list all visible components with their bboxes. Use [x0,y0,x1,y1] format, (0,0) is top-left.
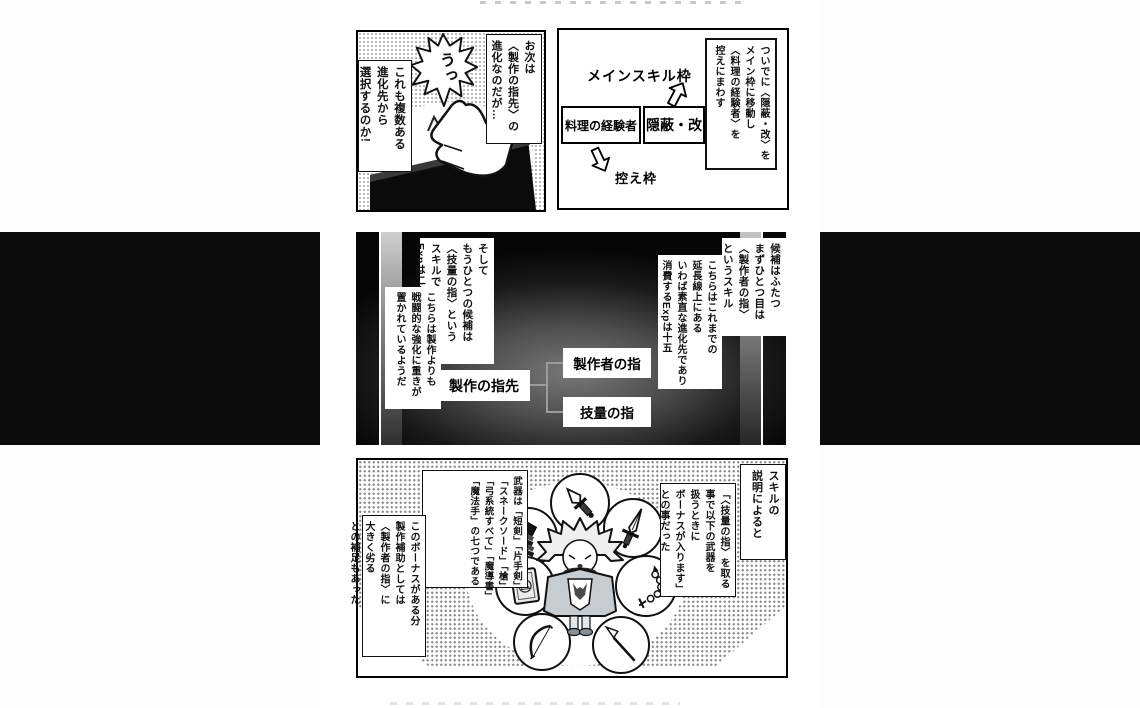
node-skill-finger: 技量の指 [563,397,651,427]
shoe [568,629,581,636]
narration-column: お次は [521,40,538,138]
narration-column: 候補はふたつ [766,243,782,331]
inpei-skill-box: 隠蔽・改 [643,106,705,144]
manga-page: うっ お次は 〈製作の指先〉の 進化なのだが… これも複数ある 進化先から 選択… [0,0,1140,708]
narration-column: 〈製作者の指〉に [376,521,391,651]
note-column: メイン枠に移動し [741,45,756,163]
narration-skill-description: スキルの 説明によると [740,464,786,560]
narration-column: 進化先から [373,66,390,166]
narration-column: 〈技量の指〉という [443,243,459,359]
note-column: ついでに〈隠蔽・改〉を [756,45,771,163]
shout-balloon: うっ [408,32,478,110]
narration-column: 進化なのだが… [488,40,505,138]
tree-line [548,411,563,413]
panel-top-left: うっ お次は 〈製作の指先〉の 進化なのだが… これも複数ある 進化先から 選択… [356,30,546,212]
narration-column: 説明によると [748,470,765,554]
spread-bleed-left [0,232,320,445]
narration-column: 「魔法手」の七つである [466,476,480,582]
panel-bottom: スキルの 説明によると 「〈技量の指〉を取る 事で以下の武器を 扱うときに ボー… [356,458,788,678]
note-box: ついでに〈隠蔽・改〉を メイン枠に移動し 〈料理の経験者〉を 控えにまわす [705,38,777,170]
narration-column: 〈製作の指先〉の [504,40,521,138]
node-crafting-fingertip: 製作の指先 [438,370,530,401]
narration-column: 「スネークソード」「槍」 [495,476,509,582]
narration-column: 戦闘的な強化に重きが [407,292,422,404]
node-crafters-finger: 製作者の指 [563,348,651,378]
shoe [580,629,593,636]
note-column: 控えにまわす [711,45,726,163]
tree-line [548,362,563,364]
mouth [577,564,582,568]
narration-column: 大きく劣る [361,521,376,651]
leg [570,616,578,629]
narration-column: 〈製作者の指〉 [735,243,751,331]
narration-bonus-caveat: このボーナスがある分 製作補助としては 〈製作者の指〉に 大きく劣る との補足も… [362,515,426,657]
narration-column: スキルの [765,470,782,554]
halftone-corner-cut [716,606,786,666]
narration-column: こちらは製作よりも [422,292,437,404]
narration-box-choice: これも複数ある 進化先から 選択するのか! [358,60,412,172]
narration-column: 「弓系統すべて」「魔導書」 [480,476,494,582]
spread-bleed-right [820,232,1140,445]
narration-column: いわば素直な進化先であり [673,260,688,384]
shout-text: うっ [432,50,460,85]
narration-candidates: 候補はふたつ まずひとつ目は 〈製作者の指〉 というスキル [722,238,786,336]
narration-column: まずひとつ目は [751,243,767,331]
narration-column: 事で以下の武器を [701,489,716,591]
narration-column: 延長線上にある [688,260,703,384]
narration-bonus-quote: 「〈技量の指〉を取る 事で以下の武器を 扱うときに ボーナスが入ります」 との事… [660,483,736,597]
narration-column: ボーナスが入ります」 [671,489,686,591]
halftone-margin [358,666,786,676]
note-column: 〈料理の経験者〉を [726,45,741,163]
narration-column: 製作補助としては [391,521,406,651]
narration-column: との事だった [656,489,671,591]
cropped-text-remnant-bottom [390,702,680,705]
narration-column: これも複数ある [390,66,407,166]
narration-combat-focus: こちらは製作よりも 戦闘的な強化に重きが 置かれているようだ [385,287,441,409]
narration-column: もうひとつの候補は [459,243,475,359]
leg [582,616,590,629]
narration-column: 選択するのか! [355,66,372,166]
narration-column: 消費するExpは十五 [658,260,673,384]
reserve-slot-label: 控え枠 [615,168,657,187]
narration-column: 武器は「短剣」「片手剣」 [509,476,523,582]
hollow-arrow-down-icon [584,143,616,178]
narration-column: 扱うときに [686,489,701,591]
panel-middle-dark: 候補はふたつ まずひとつ目は 〈製作者の指〉 というスキル こちらはこれまでの … [356,232,786,445]
narration-column: そして [474,243,490,359]
narration-weapon-list: 武器は「短剣」「片手剣」 「スネークソード」「槍」 「弓系統すべて」「魔導書」 … [422,470,528,588]
panel-top-right: ついでに〈隠蔽・改〉を メイン枠に移動し 〈料理の経験者〉を 控えにまわす メイ… [557,28,789,210]
narration-box-next: お次は 〈製作の指先〉の 進化なのだが… [486,34,542,144]
cooking-skill-box: 料理の経験者 [561,106,641,144]
chibi-character-art [535,515,625,660]
narration-column: 「〈技量の指〉を取る [716,489,731,591]
cropped-text-remnant-top [480,1,745,4]
narration-column: との補足もあった [346,521,361,651]
tree-line [546,362,548,413]
narration-column: このボーナスがある分 [406,521,421,651]
narration-column: こちらはこれまでの [703,260,718,384]
narration-column: 置かれているようだ [392,292,407,404]
narration-straight-evolution: こちらはこれまでの 延長線上にある いわば素直な進化先であり 消費するExpは十… [658,255,722,389]
